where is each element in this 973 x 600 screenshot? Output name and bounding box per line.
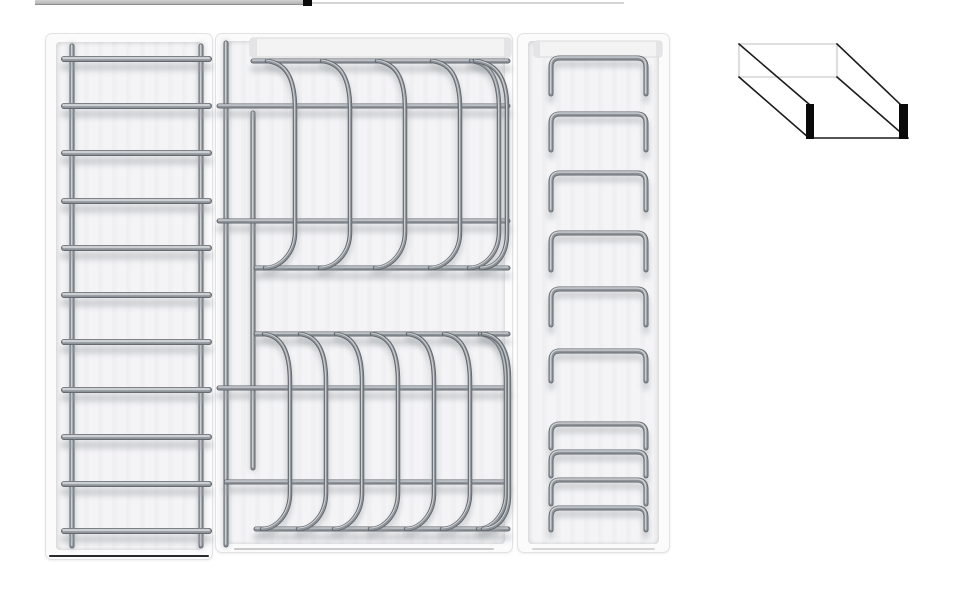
rail-end-cap (656, 41, 662, 57)
lid-rack-top-rail (534, 41, 662, 57)
cropped-top-mark (303, 0, 312, 6)
plate-rack-top-rail (250, 38, 511, 57)
sketch-edge (837, 77, 907, 138)
sketch-edge (739, 77, 809, 138)
plate-rack-wires (216, 34, 514, 554)
drawer-box-sketch (735, 40, 920, 148)
page: { "meta": { "description": "Product rend… (0, 0, 973, 600)
lid-rack-wires (518, 34, 671, 554)
sketch-front-wall-bar (899, 104, 908, 139)
rail-end-cap (250, 38, 257, 57)
drawer-insert-plate-rack (215, 33, 513, 553)
drawer-insert-ladder-rack (45, 33, 213, 560)
tray-bottom-edge (532, 548, 655, 550)
sketch-edge (837, 44, 901, 105)
ladder-rack-wires (46, 34, 214, 561)
tray-bottom-edge (49, 555, 209, 557)
sketch-front-wall-bar (806, 104, 814, 139)
rail-end-cap (504, 38, 511, 57)
cropped-top-bar (35, 0, 303, 5)
drawer-insert-lid-rack (517, 33, 670, 553)
rail-end-cap (534, 41, 540, 57)
tray-bottom-edge (234, 548, 494, 550)
sketch-edge (739, 44, 810, 105)
cropped-top-line (312, 2, 624, 4)
